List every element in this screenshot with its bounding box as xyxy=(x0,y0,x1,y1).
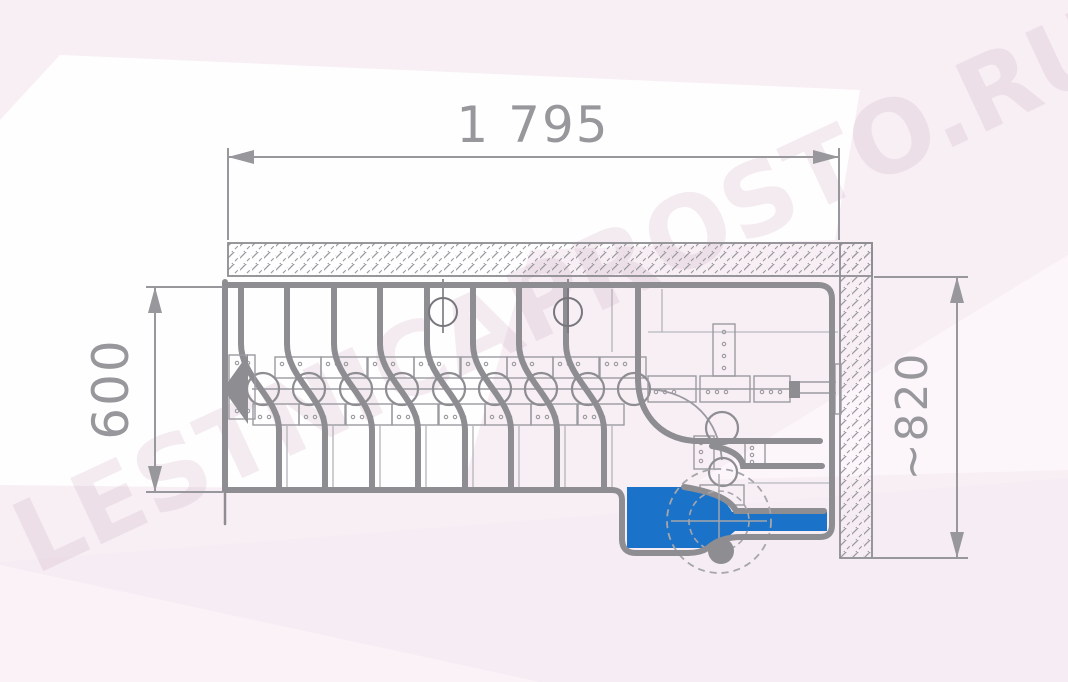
top-wall-hatched xyxy=(228,243,872,276)
bolt-hole xyxy=(605,362,608,365)
wall-anchor xyxy=(789,381,800,398)
dimension-left-label: 600 xyxy=(82,338,140,439)
background-light-triangle-right xyxy=(700,255,1068,480)
bolt-hole xyxy=(558,362,561,365)
walkline-turn-curve xyxy=(650,389,722,460)
dimension-top-label: 1 795 xyxy=(456,96,609,154)
right-wall-hatched xyxy=(840,243,872,558)
bolt-hole xyxy=(614,362,617,365)
bolt-hole xyxy=(583,415,586,418)
landing-plates xyxy=(648,324,790,402)
bolt-hole xyxy=(536,415,539,418)
dimension-right-label: ~820 xyxy=(887,352,938,481)
bolt-hole xyxy=(623,362,626,365)
center-pole xyxy=(708,538,734,564)
blueprint-canvas: LESTNICAPROSTO.RU xyxy=(0,0,1068,682)
staircase-plan-drawing: LESTNICAPROSTO.RU xyxy=(0,0,1068,682)
bolt-hole xyxy=(499,415,502,418)
bolt-hole xyxy=(490,415,493,418)
bolt-hole xyxy=(592,415,595,418)
bolt-hole xyxy=(545,415,548,418)
dim-arrow-up xyxy=(950,277,964,303)
bolt-hole xyxy=(576,362,579,365)
